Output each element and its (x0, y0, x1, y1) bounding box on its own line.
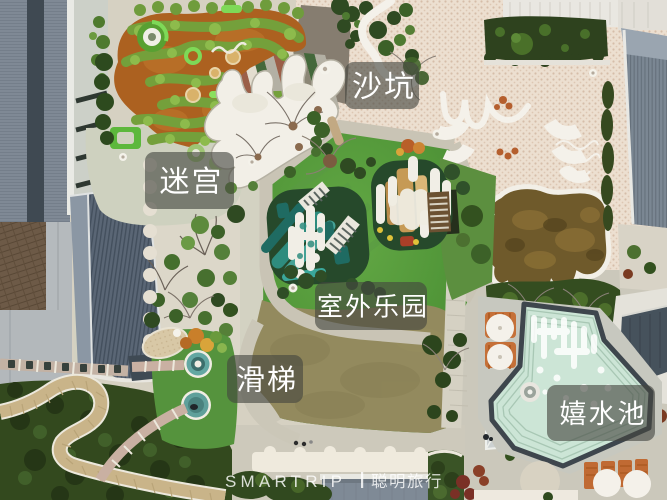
svg-text:SMARTRIP: SMARTRIP (225, 472, 346, 491)
